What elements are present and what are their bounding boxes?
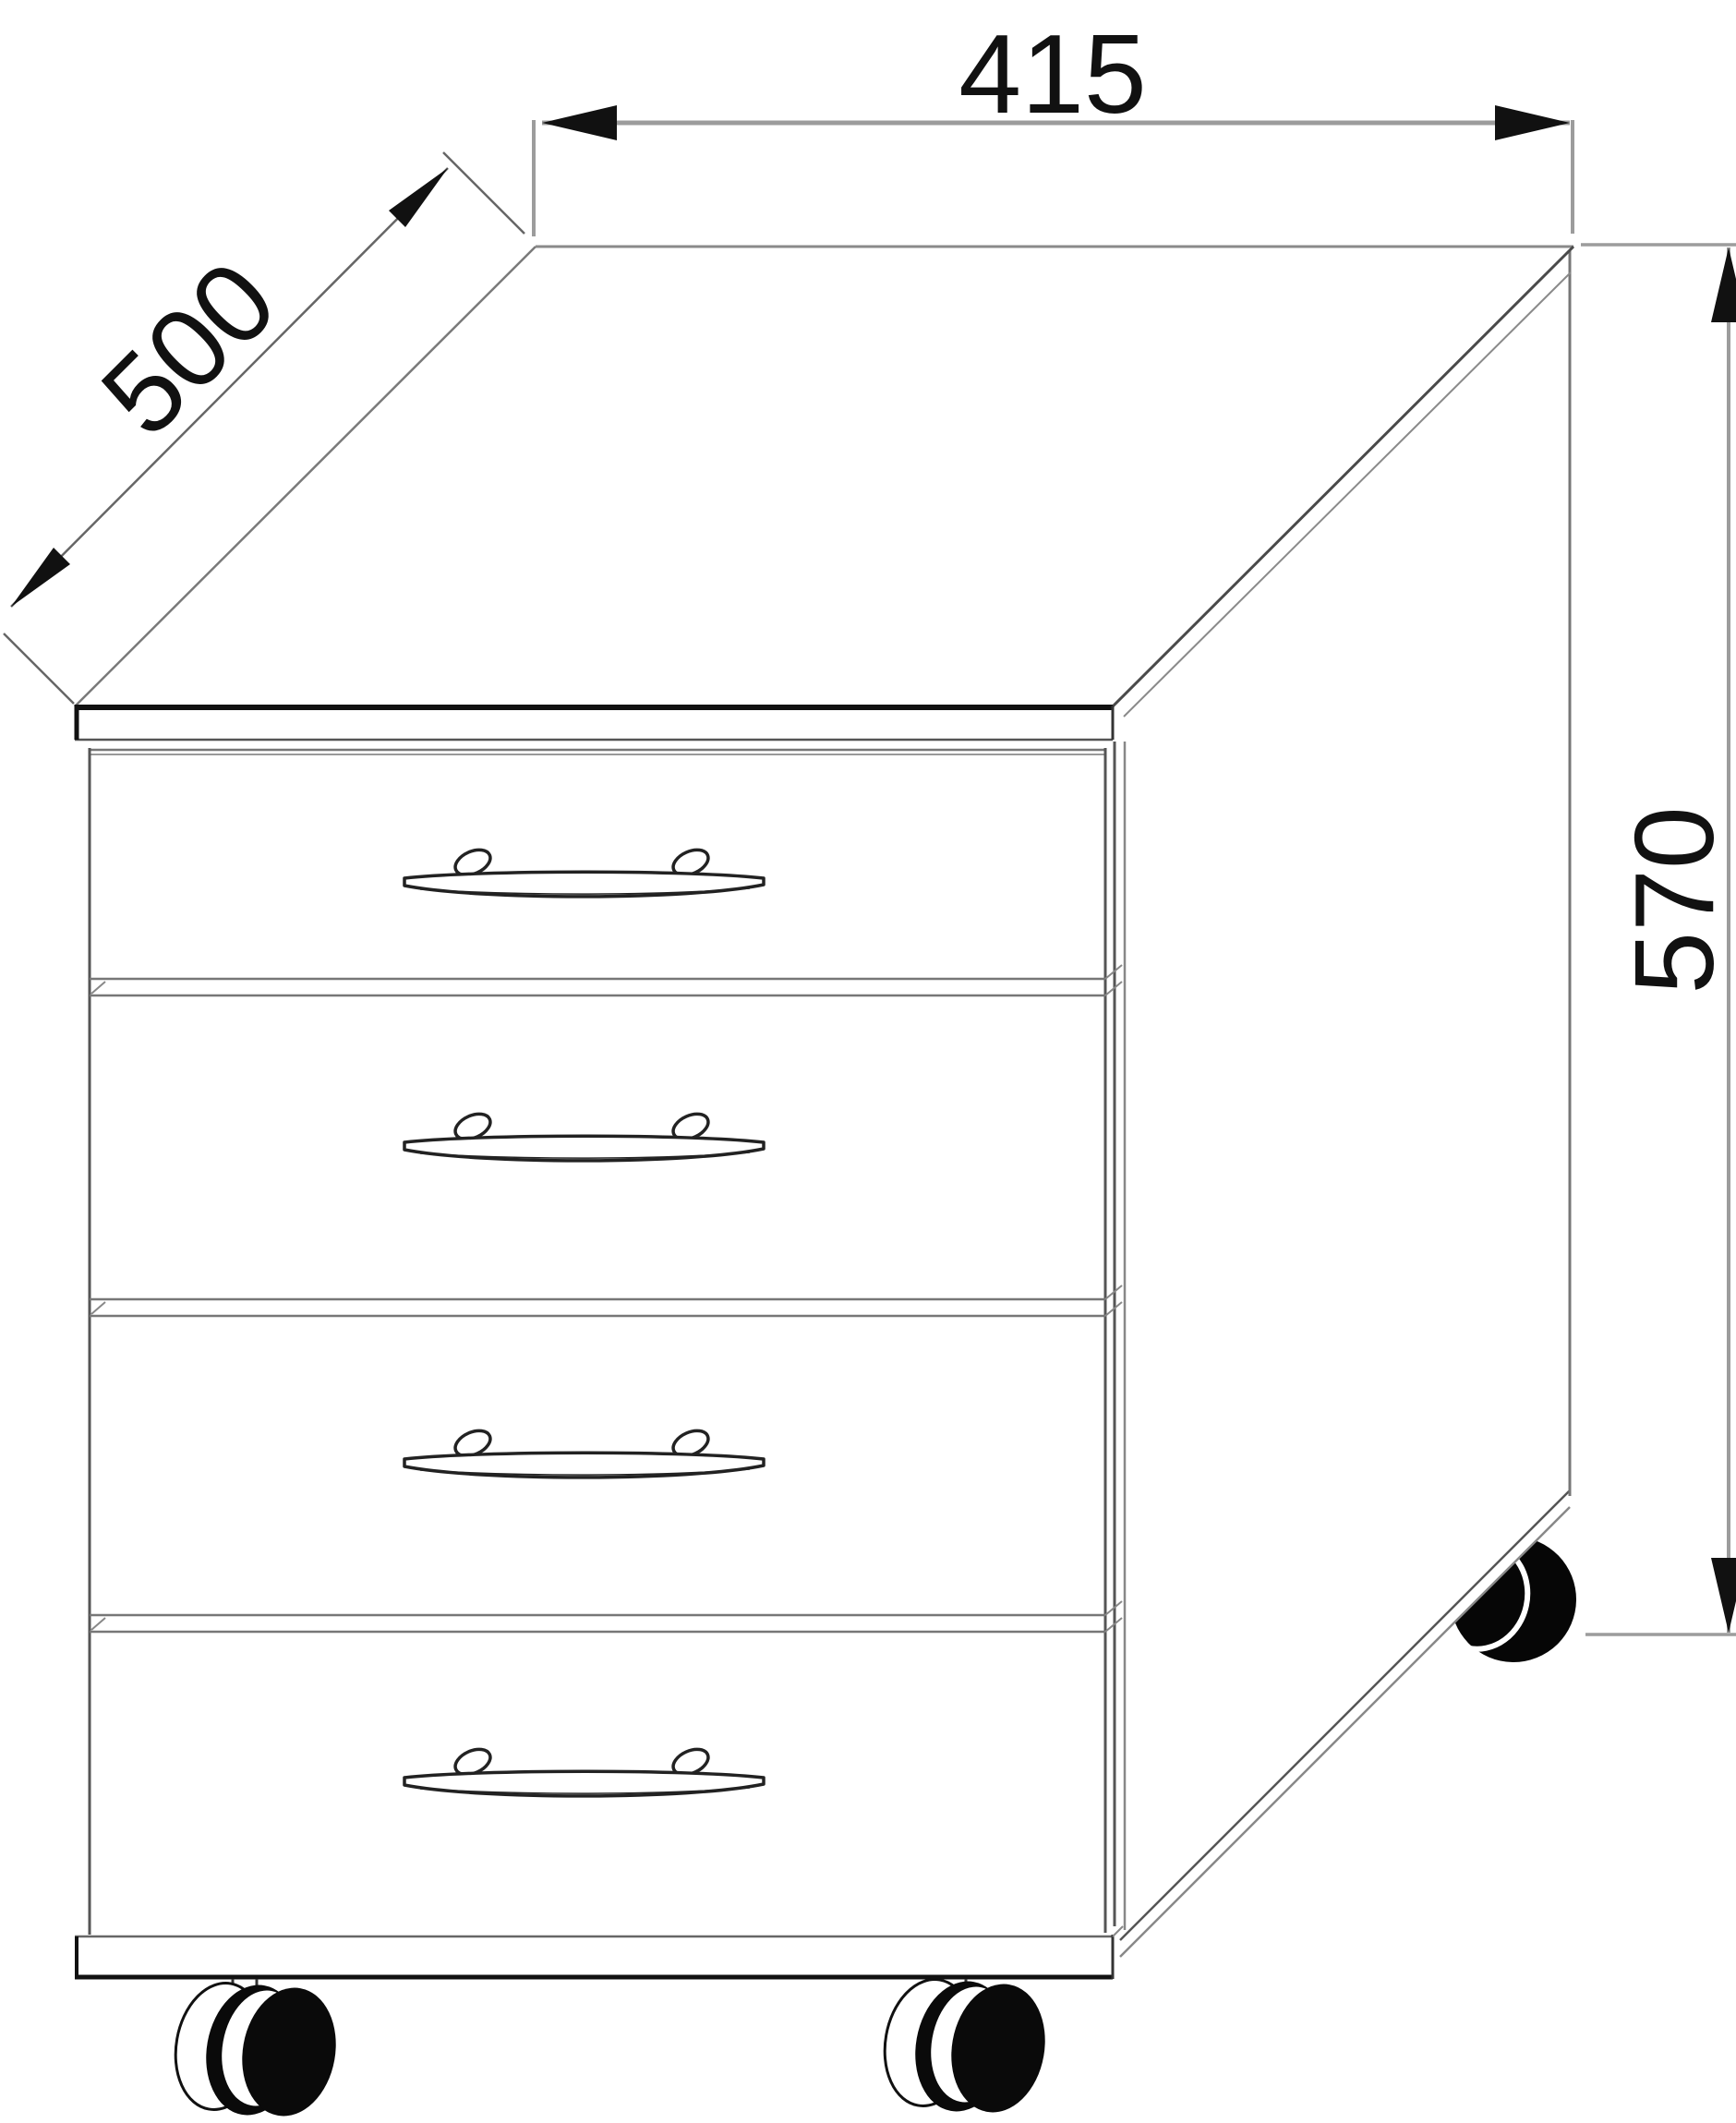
arrowhead-bottom-icon <box>1711 1558 1736 1633</box>
arrowhead-left-icon <box>542 105 617 140</box>
dimension-height: 570 <box>1581 245 1736 1634</box>
height-dimension-label: 570 <box>1611 806 1736 995</box>
dimension-width: 415 <box>534 11 1573 236</box>
arrowhead-upper-icon <box>389 168 448 227</box>
pedestal-dimension-drawing: 415 500 570 <box>0 0 1736 2123</box>
arrowhead-right-icon <box>1495 105 1570 140</box>
top-panel <box>75 247 1573 740</box>
front-face-panel <box>90 748 1105 1935</box>
technical-drawing-page: 415 500 570 <box>0 0 1736 2123</box>
arrowhead-lower-icon <box>11 548 70 607</box>
pedestal-cabinet <box>75 247 1588 2123</box>
top-panel-front-band <box>75 708 1113 739</box>
arrowhead-top-icon <box>1711 247 1736 322</box>
caster-front-left <box>166 1976 346 2123</box>
plinth-face <box>75 1936 1113 1978</box>
front-face <box>90 748 1105 1935</box>
caster-front-right <box>875 1972 1055 2120</box>
depth-dimension-label: 500 <box>78 237 299 459</box>
width-dimension-label: 415 <box>958 11 1147 137</box>
extension-line-front <box>4 633 74 704</box>
side-panel-face <box>1120 742 1573 1946</box>
extension-line-back <box>443 152 524 234</box>
